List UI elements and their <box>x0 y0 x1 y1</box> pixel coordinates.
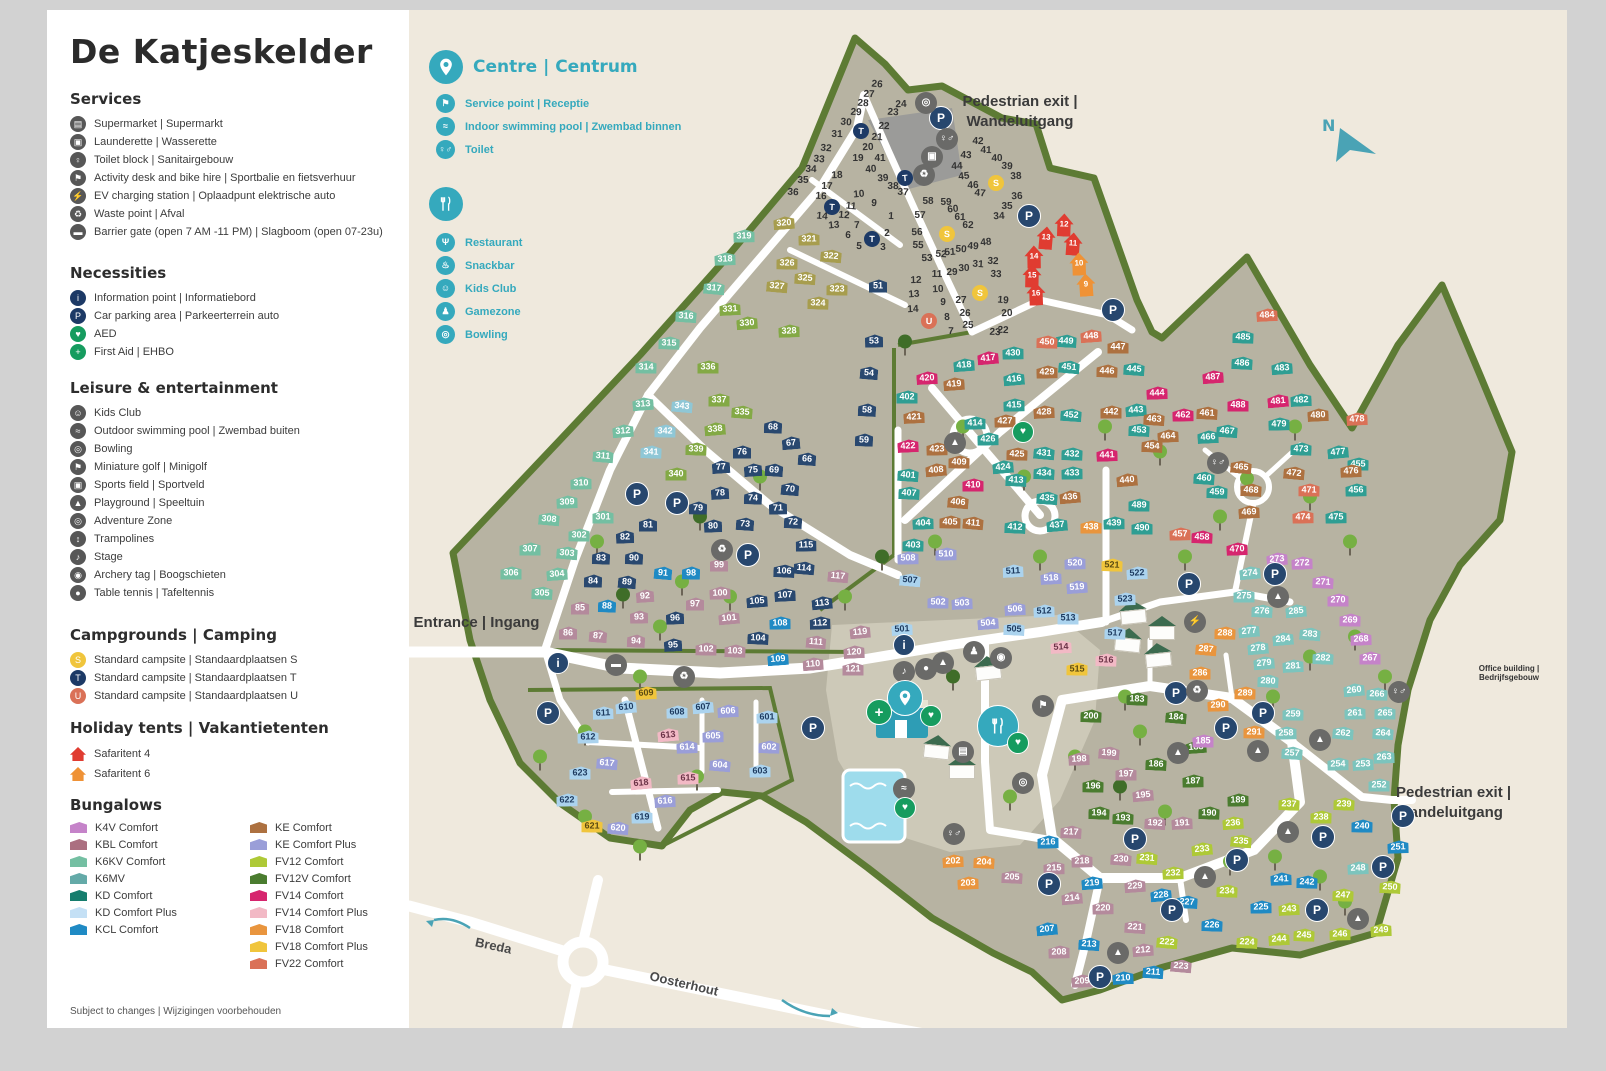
north-arrow <box>1336 128 1376 162</box>
office-building-label: Office building | Bedrijfsgebouw <box>1464 664 1554 682</box>
safaritent-swatch <box>70 767 86 781</box>
tree-trunk <box>539 764 541 771</box>
pedestrian-exit-top-label: Pedestrian exit | Wandeluitgang <box>930 92 1110 132</box>
bungalow-swatch <box>250 907 267 918</box>
legend-item-label: FV12V Comfort <box>275 873 351 885</box>
tree-crown <box>1158 805 1172 819</box>
legend-item-label: Toilet block | Sanitairgebouw <box>94 154 233 166</box>
plot-marker-p: 25 <box>962 321 974 331</box>
P-icon: P <box>665 491 689 515</box>
legend-item-bungalow: FV14 Comfort <box>250 889 368 902</box>
plot-marker-p: 12 <box>910 276 922 286</box>
plot-marker-p: 9 <box>868 198 881 209</box>
stage-icon: ♪ <box>70 549 86 565</box>
legend-item-bungalow: KE Comfort <box>250 821 368 834</box>
tree-crown <box>1268 850 1282 864</box>
house-body <box>1149 626 1175 640</box>
centre-legend-item: ⚑Service point | Receptie <box>429 92 681 115</box>
tree-icon <box>1003 790 1017 811</box>
house-body <box>923 744 950 761</box>
tree-icon <box>633 840 647 861</box>
legend-item-label: Playground | Speeltuin <box>94 497 205 509</box>
section-title: Necessities <box>70 264 279 282</box>
P-icon: P <box>1305 898 1329 922</box>
centre-legend-item: ☺Kids Club <box>429 277 681 300</box>
tree-trunk <box>1319 884 1321 891</box>
legend-item-label: Supermarket | Supermarkt <box>94 118 223 130</box>
tree-trunk <box>639 854 641 861</box>
P-icon: P <box>1123 827 1147 851</box>
legend-item-bungalow: FV18 Comfort <box>250 923 368 936</box>
centre-legend-item-label: Gamezone <box>465 306 521 318</box>
legend-item-label: FV12 Comfort <box>275 856 343 868</box>
plot-marker-p: 10 <box>853 189 866 200</box>
centre-legend-item: ΨRestaurant <box>429 231 681 254</box>
tree-crown <box>1033 550 1047 564</box>
legend-section-necessities: Necessities iInformation point | Informa… <box>70 264 279 361</box>
plot-marker-p: 3 <box>877 243 889 253</box>
centre-pin-icon <box>429 50 463 84</box>
legend-item-label: Kids Club <box>94 407 141 419</box>
P-icon: P <box>1251 701 1275 725</box>
legend-item-label: Miniature golf | Minigolf <box>94 461 207 473</box>
tree-trunk <box>622 602 624 609</box>
centre-legend-item: ◎Bowling <box>429 323 681 346</box>
tree-icon <box>1033 550 1047 571</box>
tree-trunk <box>1274 864 1276 871</box>
adventure-zone-icon: ◎ <box>70 513 86 529</box>
tree-icon <box>653 620 667 641</box>
legend-item-label: Stage <box>94 551 123 563</box>
legend-item-label: Car parking area | Parkeerterrein auto <box>94 310 279 322</box>
section-title: Services <box>70 90 383 108</box>
P-icon: P <box>1017 204 1041 228</box>
legend-item-bungalow: K6KV Comfort <box>70 855 230 868</box>
P-icon: P <box>1391 804 1415 828</box>
centre-legend-title: Centre | Centrum <box>473 57 638 77</box>
P-icon: P <box>1088 965 1112 989</box>
plot-marker-p: 58 <box>922 197 934 207</box>
legend-item-label: Adventure Zone <box>94 515 172 527</box>
legend-item-label: Bowling <box>94 443 133 455</box>
plot-marker-p: 5 <box>853 242 866 253</box>
tree-trunk <box>681 589 683 596</box>
supermarket-icon: ▤ <box>952 741 974 763</box>
bungalow-swatch <box>250 958 267 969</box>
tree-crown <box>875 550 889 564</box>
plot-marker-p: 19 <box>852 154 864 164</box>
tree-crown <box>1003 790 1017 804</box>
centre-legend-item-label: Kids Club <box>465 283 516 295</box>
trampolines-icon: ↕ <box>70 531 86 547</box>
playground-icon: ▲ <box>1247 740 1269 762</box>
tree-crown <box>898 335 912 349</box>
bungalow-swatch <box>70 822 87 833</box>
legend-item: ♀Toilet block | Sanitairgebouw <box>70 151 383 169</box>
waste-icon: ♻ <box>1186 680 1208 702</box>
P-icon: P <box>625 482 649 506</box>
legend-section-campgrounds: Campgrounds | Camping SStandard campsite… <box>70 626 298 705</box>
tree-trunk <box>1344 909 1346 916</box>
house-roof <box>1148 616 1176 626</box>
legend-item-label: KE Comfort <box>275 822 332 834</box>
waste-icon: ♻ <box>711 539 733 561</box>
tree-icon <box>1098 420 1112 441</box>
plot-marker-p: 43 <box>960 151 972 161</box>
tree-crown <box>633 670 647 684</box>
legend-item-label: KD Comfort <box>95 890 152 902</box>
house-body <box>949 765 975 779</box>
tree-icon <box>616 588 630 609</box>
plot-marker-p: 50 <box>955 245 968 256</box>
kids-club-icon: ☺ <box>436 279 455 298</box>
campsite-s-icon: S <box>70 652 86 668</box>
section-title: Leisure & entertainment <box>70 379 300 397</box>
plot-marker-p: 13 <box>908 290 921 301</box>
gamezone-icon: ♟ <box>963 641 985 663</box>
legend-item-label: Trampolines <box>94 533 154 545</box>
centre-legend-item-label: Indoor swimming pool | Zwembad binnen <box>465 121 681 133</box>
plot-marker-p: 31 <box>972 260 985 271</box>
legend-item: ▣Launderette | Wasserette <box>70 133 383 151</box>
plot-marker-p: 7 <box>945 327 957 337</box>
legend-item-label: AED <box>94 328 117 340</box>
campsite-u-icon: U <box>70 688 86 704</box>
legend-item: ♥AED <box>70 325 279 343</box>
waste-icon: ♻ <box>673 666 695 688</box>
ev-icon: ⚡ <box>1184 611 1206 633</box>
legend-item-label: KBL Comfort <box>95 839 158 851</box>
plot-marker-p: 1 <box>885 212 898 223</box>
legend-item: PCar parking area | Parkeerterrein auto <box>70 307 279 325</box>
bungalow-swatch <box>70 873 87 884</box>
tree-crown <box>533 750 547 764</box>
centre-legend-header: Centre | Centrum <box>429 50 681 84</box>
legend-section-leisure: Leisure & entertainment ☺Kids Club≈Outdo… <box>70 379 300 602</box>
tree-trunk <box>729 604 731 611</box>
tree-crown <box>838 590 852 604</box>
tree-trunk <box>659 634 661 641</box>
centre-legend-item-label: Restaurant <box>465 237 522 249</box>
tree-trunk <box>1119 794 1121 801</box>
tree-crown <box>1378 670 1392 684</box>
tree-icon <box>533 750 547 771</box>
legend-item: ◎Bowling <box>70 440 300 458</box>
tree-trunk <box>1309 504 1311 511</box>
legend-item: ⚑Activity desk and bike hire | Sportbali… <box>70 169 383 187</box>
plot-marker-p: 30 <box>840 117 853 128</box>
restaurant-icon: Ψ <box>436 233 455 252</box>
bungalow-swatch <box>70 890 87 901</box>
legend-item-label: Outdoor swimming pool | Zwembad buiten <box>94 425 300 437</box>
plot-marker-p: 10 <box>932 285 945 296</box>
playground-icon: ▲ <box>932 652 954 674</box>
plot-marker-p: 8 <box>941 313 954 324</box>
toilet-icon: ♀♂ <box>436 140 455 159</box>
playground-icon: ▲ <box>1194 866 1216 888</box>
P-icon: P <box>1311 825 1335 849</box>
house-body <box>1145 652 1172 669</box>
bungalow-swatch <box>70 839 87 850</box>
P-icon: P <box>1101 298 1125 322</box>
legend-item-label: FV14 Comfort <box>275 890 343 902</box>
legend-item-label: Barrier gate (open 7 AM -11 PM) | Slagbo… <box>94 226 383 238</box>
tree-icon <box>1213 510 1227 531</box>
legend-item-label: Information point | Informatiebord <box>94 292 256 304</box>
house-icon <box>1143 642 1173 669</box>
pin-icon <box>887 680 923 716</box>
legend-item-campsite: SStandard campsite | Standaardplaatsen S <box>70 651 298 669</box>
plot-marker-p: 29 <box>946 268 958 278</box>
plot-marker-p: 23 <box>989 328 1001 338</box>
north-label: N <box>1322 116 1335 135</box>
P-icon: P <box>1164 681 1188 705</box>
tree-trunk <box>1139 739 1141 746</box>
centre-legend: Centre | Centrum ⚑Service point | Recept… <box>429 50 681 346</box>
centre-legend-item-label: Service point | Receptie <box>465 98 589 110</box>
house-body <box>1120 609 1147 626</box>
legend-item-tent: Safaritent 6 <box>70 764 329 784</box>
bungalow-swatch <box>250 822 267 833</box>
plot-marker-p: 31 <box>831 130 843 140</box>
legend-item-label: KE Comfort Plus <box>275 839 356 851</box>
house-icon <box>1148 616 1176 640</box>
legend-item-label: Archery tag | Boogschieten <box>94 569 226 581</box>
legend-item: ↕Trampolines <box>70 530 300 548</box>
bungalow-swatch <box>250 856 267 867</box>
launderette-icon: ▣ <box>70 134 86 150</box>
legend-item-label: Standard campsite | Standaardplaatsen U <box>94 690 298 702</box>
tree-trunk <box>699 524 701 531</box>
plot-marker-p: 34 <box>805 165 817 175</box>
legend-item: +First Aid | EHBO <box>70 343 279 361</box>
footnote: Subject to changes | Wijzigingen voorbeh… <box>70 1006 281 1017</box>
bungalow-swatch <box>250 890 267 901</box>
park-map-document: De Katjeskelder Services ▤Supermarket | … <box>0 0 1606 1071</box>
bungalow-swatch <box>250 839 267 850</box>
playground-icon: ▲ <box>1167 742 1189 764</box>
legend-item: ▬Barrier gate (open 7 AM -11 PM) | Slagb… <box>70 223 383 241</box>
plot-marker-p: 9 <box>937 298 950 309</box>
P-icon: P <box>1177 572 1201 596</box>
minigolf-icon: ⚑ <box>1032 695 1054 717</box>
plot-marker-p: 11 <box>931 270 943 280</box>
tree-trunk <box>1384 684 1386 691</box>
legend-item-label: K6KV Comfort <box>95 856 165 868</box>
campsite-t-icon: T <box>70 670 86 686</box>
plot-marker-p: 2 <box>881 229 894 240</box>
centre-legend-item: ♟Gamezone <box>429 300 681 323</box>
P-icon: P <box>1263 562 1287 586</box>
plot-marker-p: 55 <box>912 241 925 252</box>
map-area: Centre | Centrum ⚑Service point | Recept… <box>409 10 1567 1028</box>
waste-point-icon: ♻ <box>70 206 86 222</box>
ev-charging-icon: ⚡ <box>70 188 86 204</box>
legend-item-label: FV14 Comfort Plus <box>275 907 368 919</box>
tree-crown <box>1113 780 1127 794</box>
tree-crown <box>1213 510 1227 524</box>
toilet-icon: ♀♂ <box>1388 681 1410 703</box>
safaritent-swatch <box>70 747 86 761</box>
aed-icon: ♥ <box>1012 421 1034 443</box>
tree-crown <box>1178 550 1192 564</box>
legend-item-bungalow: FV12V Comfort <box>250 872 368 885</box>
minigolf-icon: ⚑ <box>70 459 86 475</box>
legend-section-services: Services ▤Supermarket | Supermarkt▣Laund… <box>70 90 383 241</box>
legend-item-label: FV22 Comfort <box>275 958 343 970</box>
tree-icon <box>1343 535 1357 556</box>
playground-icon: ▲ <box>70 495 86 511</box>
legend-item: ☺Kids Club <box>70 404 300 422</box>
tree-trunk <box>1309 664 1311 671</box>
legend-item-bungalow: FV14 Comfort Plus <box>250 906 368 919</box>
page-title: De Katjeskelder <box>70 32 373 71</box>
plot-marker-p: 32 <box>987 257 999 267</box>
plot-marker-p: 35 <box>797 176 809 186</box>
legend-item: ▤Supermarket | Supermarkt <box>70 115 383 133</box>
tree-crown <box>1133 725 1147 739</box>
legend-item-label: Standard campsite | Standaardplaatsen T <box>94 672 297 684</box>
i-icon: i <box>893 634 915 656</box>
tree-trunk <box>1349 549 1351 556</box>
tree-trunk <box>1184 564 1186 571</box>
barrier-icon: ▬ <box>605 654 627 676</box>
house-icon <box>922 734 952 761</box>
i-icon: i <box>547 652 569 674</box>
plot-marker-p: 47 <box>974 188 987 199</box>
plot-marker-p: 23 <box>887 108 900 119</box>
tree-trunk <box>696 784 698 791</box>
plot-marker-p: 57 <box>914 211 926 221</box>
plot-marker-p: 26 <box>959 309 972 320</box>
pedestrian-exit-right-label: Pedestrian exit | Wandeluitgang <box>1396 783 1567 823</box>
legend-item-label: Activity desk and bike hire | Sportbalie… <box>94 172 356 184</box>
tree-trunk <box>952 684 954 691</box>
toilet-block-icon: ♀ <box>70 152 86 168</box>
tree-trunk <box>1294 434 1296 441</box>
plot-marker-p: 27 <box>955 296 967 306</box>
centre-legend-item: ≈Indoor swimming pool | Zwembad binnen <box>429 115 681 138</box>
playground-icon: ▲ <box>1347 908 1369 930</box>
plot-marker-p: 49 <box>967 242 980 253</box>
tree-icon <box>1133 725 1147 746</box>
activity-desk-bike-hire-icon: ⚑ <box>70 170 86 186</box>
plot-marker-p: 13 <box>828 220 841 231</box>
legend-item: ⚡EV charging station | Oplaadpunt elektr… <box>70 187 383 205</box>
centre-legend-item-label: Bowling <box>465 329 508 341</box>
sports-field-icon: ▣ <box>70 477 86 493</box>
plot-marker-p: 19 <box>997 295 1010 306</box>
barrier-gate-icon: ▬ <box>70 224 86 240</box>
service-point-icon: ⚑ <box>436 94 455 113</box>
legend-item-campsite: UStandard campsite | Standaardplaatsen U <box>70 687 298 705</box>
archery-icon: ◉ <box>70 567 86 583</box>
centre-legend-item-label: Toilet <box>465 144 494 156</box>
legend-item-label: Launderette | Wasserette <box>94 136 217 148</box>
P-icon: P <box>801 716 825 740</box>
plot-marker-p: 32 <box>820 144 833 155</box>
tree-crown <box>1098 420 1112 434</box>
toilet-icon: ♀♂ <box>936 128 958 150</box>
tree-icon <box>1178 550 1192 571</box>
plot-marker-p: 18 <box>831 171 843 181</box>
bungalow-swatch <box>70 907 87 918</box>
legend-item: ●Table tennis | Tafeltennis <box>70 584 300 602</box>
plot-marker-p: 20 <box>1001 309 1014 320</box>
playground-icon: ▲ <box>944 432 966 454</box>
tree-trunk <box>1039 564 1041 571</box>
tree-trunk <box>1219 524 1221 531</box>
legend-item-bungalow: K6MV <box>70 872 230 885</box>
toilet-icon: ♀♂ <box>1207 452 1229 474</box>
centre-legend-item-label: Snackbar <box>465 260 515 272</box>
playground-icon: ▲ <box>1277 821 1299 843</box>
bungalow-swatch <box>250 873 267 884</box>
waste-icon: ♻ <box>913 164 935 186</box>
adventure-icon: ◎ <box>915 92 937 114</box>
entrance-label: Entrance | Ingang <box>409 613 544 633</box>
legend-section-bungalows: Bungalows K4V ComfortKBL ComfortK6KV Com… <box>70 796 368 970</box>
centre-legend-item: ♀♂Toilet <box>429 138 681 161</box>
P-icon: P <box>1160 898 1184 922</box>
outdoor-pool-icon: ≈ <box>70 423 86 439</box>
legend-section-tents: Holiday tents | Vakantietenten Safariten… <box>70 719 329 784</box>
legend-item-label: KCL Comfort <box>95 924 158 936</box>
tree-trunk <box>844 604 846 611</box>
section-title: Holiday tents | Vakantietenten <box>70 719 329 737</box>
restaurant-big-icon <box>429 187 463 221</box>
plot-marker-p: 14 <box>907 305 920 316</box>
legend-item-label: FV18 Comfort Plus <box>275 941 368 953</box>
legend-item-bungalow: KD Comfort Plus <box>70 906 230 919</box>
aed-icon: ♥ <box>894 797 916 819</box>
P-icon: P <box>1225 848 1249 872</box>
tree-trunk <box>1124 704 1126 711</box>
tree-crown <box>653 620 667 634</box>
legend-item-tent: Safaritent 4 <box>70 744 329 764</box>
legend-item: ♪Stage <box>70 548 300 566</box>
legend-item: ◎Adventure Zone <box>70 512 300 530</box>
tree-icon <box>1268 850 1282 871</box>
table-tennis-icon: ● <box>70 585 86 601</box>
plot-marker-p: 34 <box>993 212 1006 223</box>
P-icon: P <box>536 701 560 725</box>
supermarket-icon: ▤ <box>70 116 86 132</box>
plot-marker-p: 20 <box>862 143 875 154</box>
legend-item-label: EV charging station | Oplaadpunt elektri… <box>94 190 335 202</box>
legend-item-bungalow: KD Comfort <box>70 889 230 902</box>
legend-item: ▣Sports field | Sportveld <box>70 476 300 494</box>
bungalow-swatch <box>250 924 267 935</box>
tree-crown <box>1343 535 1357 549</box>
information-icon: i <box>70 290 86 306</box>
tree-crown <box>616 588 630 602</box>
bungalow-swatch <box>70 856 87 867</box>
P-icon: P <box>736 543 760 567</box>
legend-item-bungalow: KE Comfort Plus <box>250 838 368 851</box>
kids-club-icon: ☺ <box>70 405 86 421</box>
plot-marker-p: 22 <box>878 122 890 132</box>
legend-item-bungalow: FV12 Comfort <box>250 855 368 868</box>
tree-trunk <box>1104 434 1106 441</box>
legend-item-label: Safaritent 6 <box>94 768 150 780</box>
legend-panel: De Katjeskelder Services ▤Supermarket | … <box>47 10 409 1028</box>
tree-icon <box>875 550 889 571</box>
aed-icon: ♥ <box>920 705 942 727</box>
tree-trunk <box>1009 804 1011 811</box>
legend-item: ♻Waste point | Afval <box>70 205 383 223</box>
legend-item-label: Waste point | Afval <box>94 208 185 220</box>
